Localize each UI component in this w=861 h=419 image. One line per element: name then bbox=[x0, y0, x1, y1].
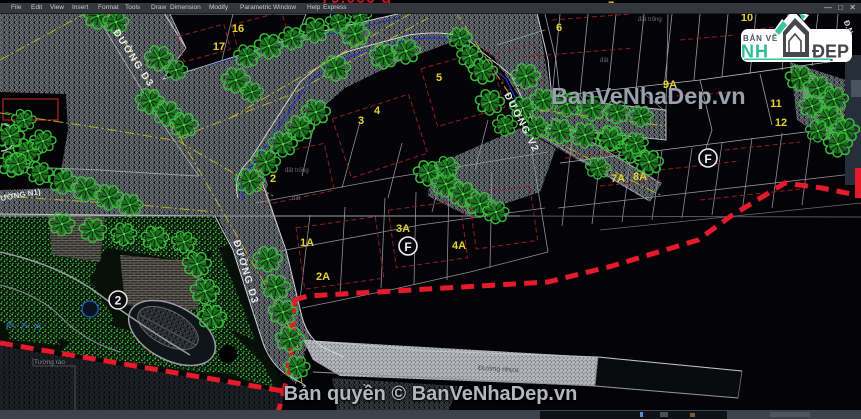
svg-text:đất trống: đất trống bbox=[360, 32, 384, 38]
svg-text:12: 12 bbox=[775, 117, 787, 129]
svg-text:1A: 1A bbox=[300, 237, 314, 249]
svg-text:2: 2 bbox=[270, 173, 276, 185]
svg-text:4A: 4A bbox=[452, 240, 466, 252]
svg-text:17: 17 bbox=[213, 41, 225, 53]
svg-text:đất: đất bbox=[600, 58, 609, 64]
svg-text:7A: 7A bbox=[611, 173, 625, 185]
svg-text:2A: 2A bbox=[316, 271, 330, 283]
svg-text:đất: đất bbox=[292, 196, 301, 202]
svg-text:8A: 8A bbox=[633, 171, 647, 183]
svg-text:6: 6 bbox=[556, 22, 562, 34]
svg-text:3A: 3A bbox=[396, 223, 410, 235]
svg-text:đất trống: đất trống bbox=[285, 168, 309, 174]
svg-text:2: 2 bbox=[115, 294, 122, 308]
svg-text:Tường rào: Tường rào bbox=[34, 359, 65, 366]
svg-text:4: 4 bbox=[374, 105, 381, 117]
svg-text:F: F bbox=[404, 240, 411, 254]
svg-text:3: 3 bbox=[358, 115, 364, 127]
svg-text:11: 11 bbox=[770, 98, 782, 110]
svg-text:5: 5 bbox=[436, 72, 442, 84]
svg-text:16: 16 bbox=[232, 23, 244, 35]
svg-text:F: F bbox=[704, 152, 711, 166]
svg-text:đất trống: đất trống bbox=[638, 17, 662, 23]
